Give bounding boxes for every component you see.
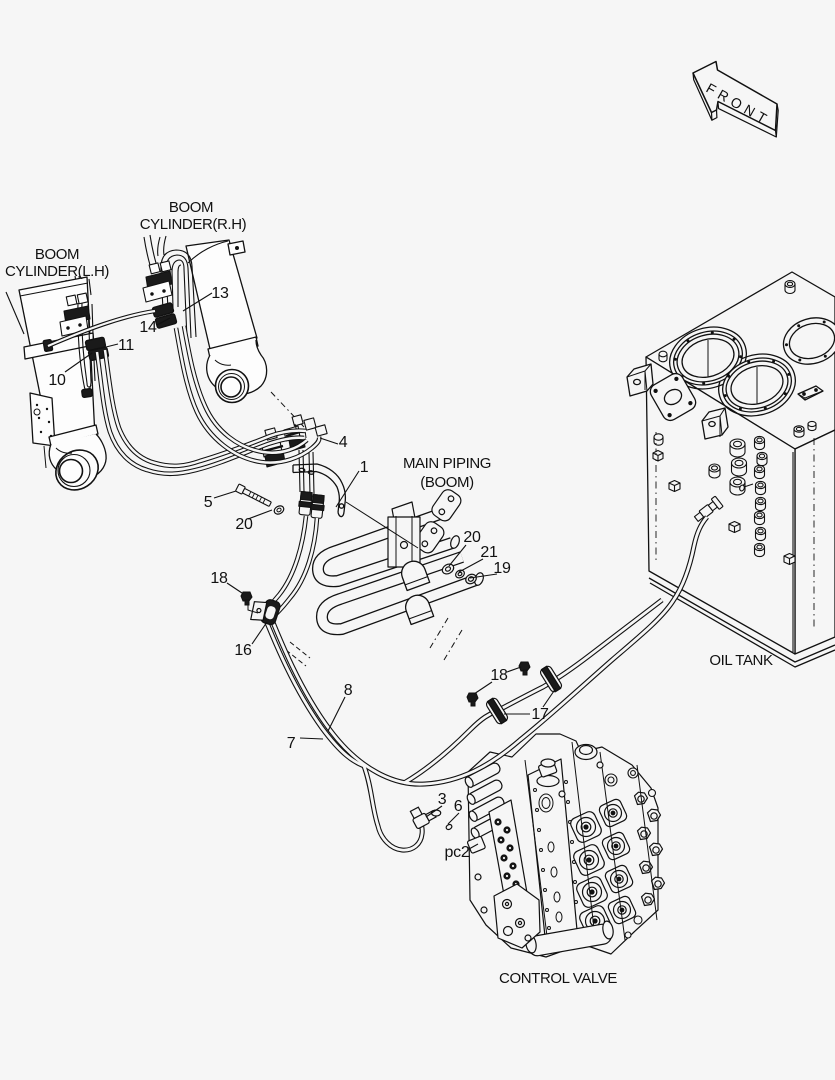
svg-text:CYLINDER(R.H): CYLINDER(R.H) (140, 216, 247, 233)
svg-text:MAIN PIPING: MAIN PIPING (403, 455, 491, 472)
svg-text:19: 19 (493, 560, 511, 577)
svg-text:5: 5 (204, 494, 213, 511)
svg-text:10: 10 (48, 372, 66, 389)
svg-text:pc2: pc2 (445, 844, 470, 861)
svg-text:1: 1 (360, 459, 369, 476)
svg-text:20: 20 (235, 516, 253, 533)
svg-text:4: 4 (339, 434, 348, 451)
svg-text:(BOOM): (BOOM) (420, 474, 474, 491)
svg-text:14: 14 (139, 319, 157, 336)
svg-text:21: 21 (480, 544, 498, 561)
svg-text:CONTROL VALVE: CONTROL VALVE (499, 970, 617, 987)
svg-text:20: 20 (463, 529, 481, 546)
svg-text:CYLINDER(L.H): CYLINDER(L.H) (5, 263, 109, 280)
svg-text:BOOM: BOOM (35, 246, 79, 263)
svg-text:11: 11 (118, 337, 134, 354)
svg-text:OIL TANK: OIL TANK (709, 652, 773, 669)
svg-text:16: 16 (234, 642, 252, 659)
svg-text:BOOM: BOOM (169, 199, 213, 216)
svg-text:3: 3 (438, 791, 447, 808)
svg-text:18: 18 (490, 667, 508, 684)
svg-text:6: 6 (454, 798, 463, 815)
svg-text:17: 17 (531, 706, 549, 723)
svg-text:8: 8 (344, 682, 353, 699)
svg-text:18: 18 (210, 570, 228, 587)
svg-text:7: 7 (287, 735, 296, 752)
svg-text:13: 13 (211, 285, 229, 302)
